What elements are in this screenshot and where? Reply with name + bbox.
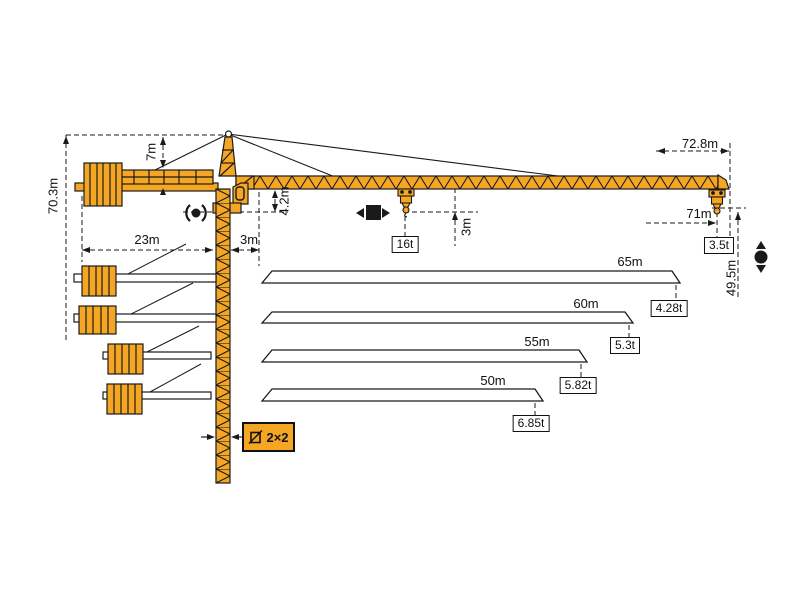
- tip-capacity-value: 3.5t: [704, 237, 734, 254]
- jib-length-bars: [262, 271, 680, 401]
- counter-jib: [75, 163, 218, 206]
- jib-length-50m-label: 50m: [480, 373, 505, 388]
- slewing-icon: [186, 205, 205, 221]
- jib-depth-label: 4.2m: [277, 187, 292, 216]
- apex-pin: [226, 131, 232, 137]
- max-capacity-value: 16t: [392, 236, 419, 253]
- tip-load-55m-value: 5.82t: [560, 377, 597, 394]
- hook-main: [403, 207, 409, 213]
- tie-rods: [155, 134, 558, 177]
- jib: [236, 175, 729, 189]
- jib-tip: [718, 175, 729, 189]
- trolley-main: [398, 189, 414, 217]
- hook-height-label: 49.5m: [724, 260, 739, 296]
- tip-load-60m-value: 5.3t: [610, 337, 640, 354]
- jib-bar-65m: [262, 271, 680, 283]
- total-height-label: 70.3m: [46, 178, 61, 214]
- mast-section-label: 2×2: [266, 430, 288, 445]
- tip-load-65m-value: 4.28t: [651, 300, 688, 317]
- hook-to-jib-label: 3m: [459, 218, 474, 236]
- counterjib-radius-label: 23m: [134, 232, 159, 247]
- mast: [216, 189, 230, 483]
- max-hook-radius-label: 71m: [686, 206, 711, 221]
- ballast-blocks: [74, 244, 216, 414]
- tip-load-50m-value: 6.85t: [513, 415, 550, 432]
- jib-bar-60m: [262, 312, 633, 323]
- crane-dimension-diagram: 70.3m 7m 23m 3m 4.2m 3m 16t 72.8m 71m 3.…: [0, 0, 800, 600]
- jib-length-60m-label: 60m: [573, 296, 598, 311]
- jib-bar-50m: [262, 389, 543, 401]
- jib-length-55m-label: 55m: [524, 334, 549, 349]
- mast-section-icon: [248, 429, 263, 445]
- mast-section-box: 2×2: [242, 422, 295, 452]
- hoist-icon: [755, 241, 768, 273]
- tower-head-height-label: 7m: [144, 143, 159, 161]
- jib-bar-55m: [262, 350, 587, 362]
- max-radius-label: 72.8m: [682, 136, 718, 151]
- jib-length-65m-label: 65m: [617, 254, 642, 269]
- trolley-travel-icon: [356, 205, 390, 220]
- hook-tip: [714, 208, 720, 214]
- rear-clearance-label: 3m: [240, 232, 258, 247]
